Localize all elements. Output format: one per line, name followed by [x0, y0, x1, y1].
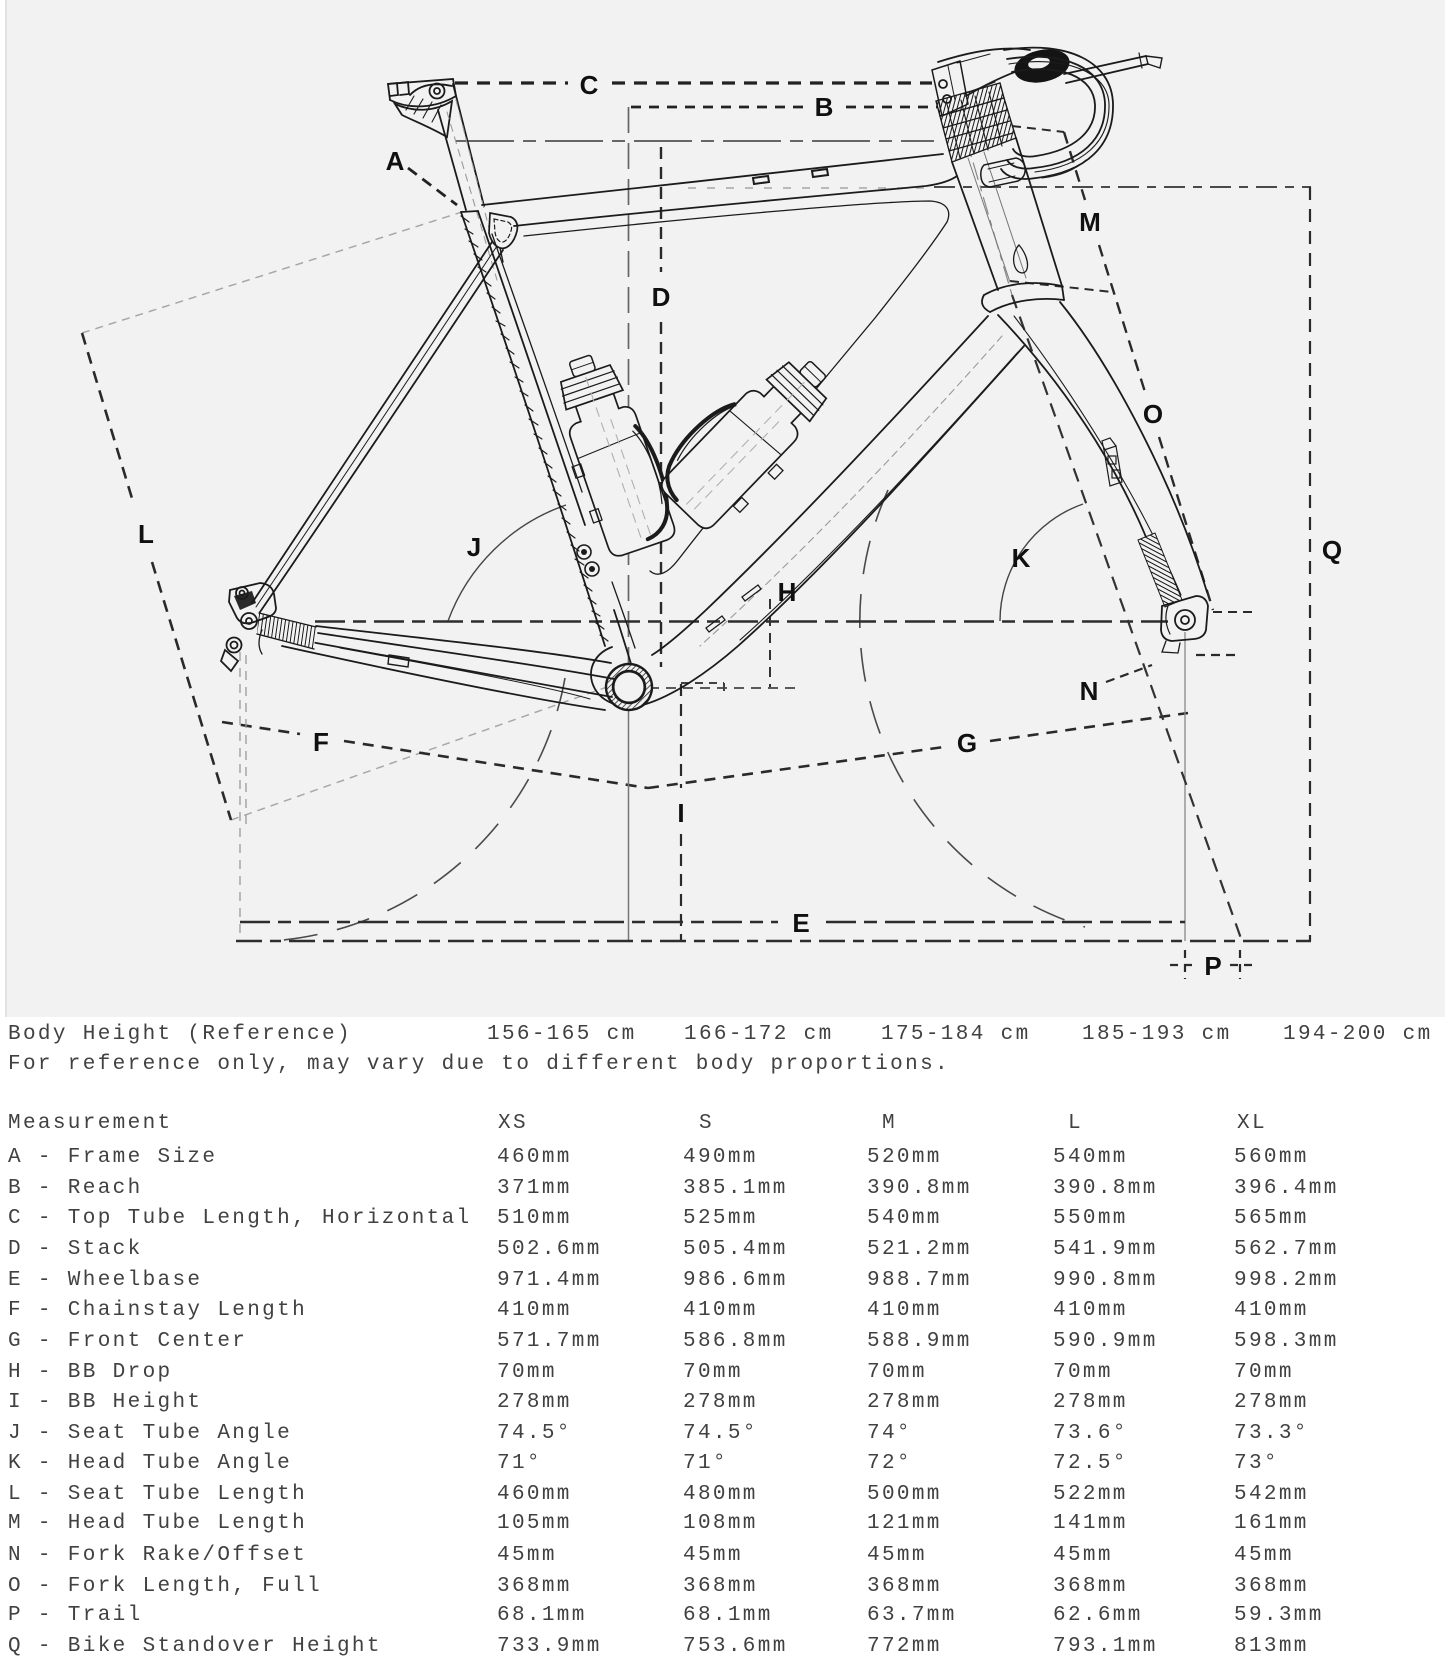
svg-text:C: C [580, 70, 599, 100]
svg-text:H: H [778, 577, 797, 607]
svg-text:P: P [1204, 951, 1221, 981]
svg-text:Q: Q [1322, 535, 1342, 565]
svg-text:K: K [1012, 543, 1031, 573]
svg-text:M: M [1079, 207, 1101, 237]
svg-text:I: I [677, 798, 684, 828]
svg-text:F: F [313, 727, 329, 757]
svg-text:N: N [1080, 676, 1099, 706]
svg-text:D: D [652, 282, 671, 312]
svg-text:A: A [386, 146, 405, 176]
svg-text:B: B [815, 92, 834, 122]
svg-text:E: E [792, 908, 809, 938]
svg-text:L: L [138, 519, 154, 549]
svg-text:J: J [467, 532, 481, 562]
svg-text:O: O [1143, 399, 1163, 429]
svg-text:G: G [957, 728, 977, 758]
